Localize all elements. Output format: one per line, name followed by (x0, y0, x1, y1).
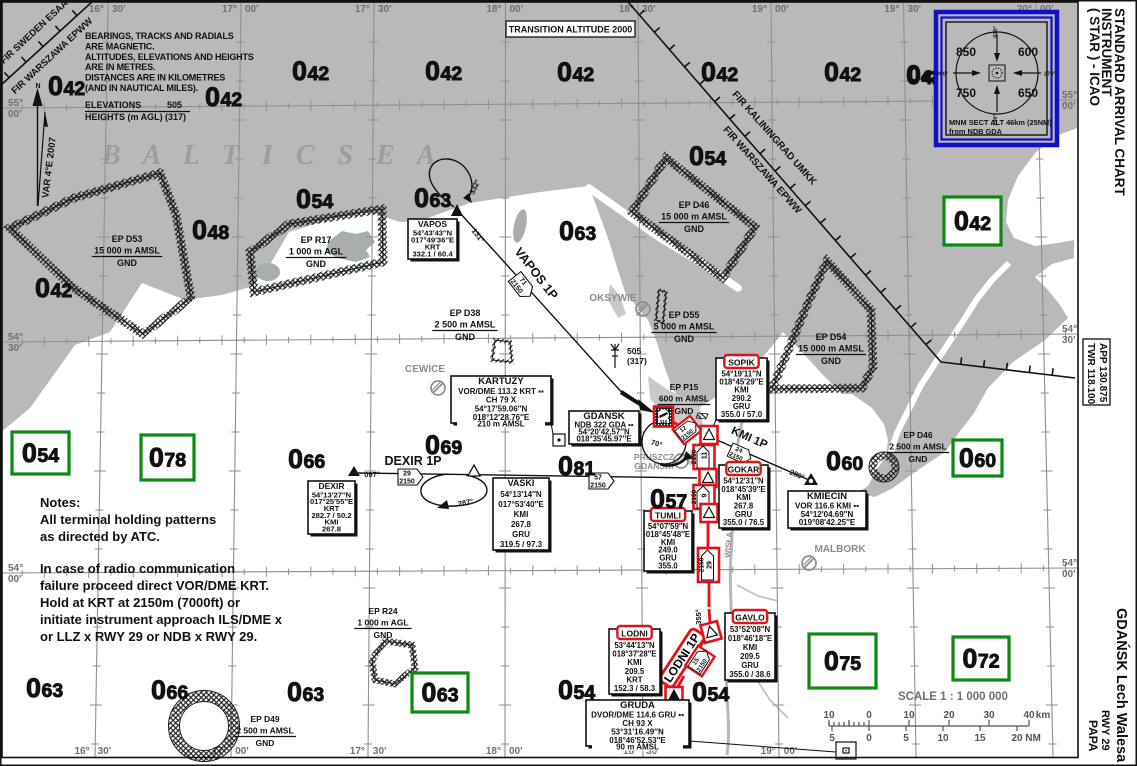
svg-text:20: 20 (943, 710, 955, 721)
svg-text:KMI: KMI (743, 643, 757, 652)
svg-text:APP 130.875: APP 130.875 (1097, 343, 1108, 403)
svg-text:018°37′28″E: 018°37′28″E (612, 649, 656, 658)
svg-text:5: 5 (903, 733, 909, 744)
svg-text:54°17′59.06″N: 54°17′59.06″N (475, 404, 528, 413)
svg-text:OKSYWIE: OKSYWIE (589, 293, 637, 304)
svg-text:11: 11 (702, 452, 709, 460)
svg-text:10: 10 (903, 710, 915, 721)
svg-text:019°08′42.25″E: 019°08′42.25″E (799, 518, 856, 527)
svg-text:2 500 m AMSL: 2 500 m AMSL (435, 320, 496, 330)
svg-text:355.0 / 57.0: 355.0 / 57.0 (721, 410, 763, 419)
svg-text:2150: 2150 (691, 449, 698, 464)
svg-text:EP D46: EP D46 (679, 200, 710, 210)
svg-text:054: 054 (558, 675, 595, 705)
svg-text:2150: 2150 (399, 479, 415, 486)
svg-text:ELEVATIONS: ELEVATIONS (85, 100, 141, 110)
svg-text:In case of radio communication: In case of radio communication (40, 561, 235, 576)
svg-text:17°: 17° (355, 4, 370, 15)
svg-text:16°: 16° (74, 746, 89, 757)
svg-text:9: 9 (702, 493, 709, 497)
svg-text:initiate instrument approach I: initiate instrument approach ILS/DME x (40, 612, 283, 627)
svg-text:HEIGHTS (m AGL): HEIGHTS (m AGL) (85, 112, 163, 122)
svg-text:EP D54: EP D54 (816, 332, 847, 342)
svg-text:17°: 17° (350, 746, 365, 757)
svg-text:18°: 18° (486, 4, 501, 15)
svg-text:SOPIK: SOPIK (728, 358, 755, 368)
svg-text:18°: 18° (486, 746, 501, 757)
svg-text:EP R17: EP R17 (301, 235, 332, 245)
svg-text:2150: 2150 (699, 557, 706, 572)
svg-text:29: 29 (707, 561, 714, 569)
svg-text:LODNI: LODNI (621, 629, 647, 639)
svg-text:090°: 090° (937, 72, 948, 78)
svg-text:CH 79 X: CH 79 X (486, 396, 517, 405)
svg-text:30: 30 (983, 710, 995, 721)
svg-text:km: km (1036, 710, 1051, 721)
svg-text:15 000 m AMSL: 15 000 m AMSL (661, 212, 727, 222)
svg-text:GND: GND (455, 332, 476, 342)
svg-text:KMIECIN: KMIECIN (807, 491, 847, 502)
svg-text:30': 30' (98, 746, 112, 757)
svg-text:90 m AMSL: 90 m AMSL (616, 743, 659, 752)
svg-text:060: 060 (826, 446, 863, 476)
svg-text:2 500 m AMSL: 2 500 m AMSL (889, 442, 946, 452)
svg-text:2150: 2150 (691, 489, 698, 504)
svg-text:55°: 55° (8, 98, 23, 109)
svg-text:010°: 010° (993, 26, 999, 37)
svg-text:ALTITUDES, ELEVATIONS AND HEIG: ALTITUDES, ELEVATIONS AND HEIGHTS (85, 52, 254, 62)
svg-text:332.1 / 60.4: 332.1 / 60.4 (412, 249, 453, 258)
svg-text:GND: GND (909, 454, 928, 464)
svg-text:GRUDA: GRUDA (620, 700, 655, 711)
svg-text:5 000 m AMSL: 5 000 m AMSL (654, 322, 715, 332)
svg-text:GND: GND (306, 259, 327, 269)
svg-text:MALBORK: MALBORK (814, 544, 866, 555)
svg-text:Hold at KRT at 2150m (7000ft): Hold at KRT at 2150m (7000ft) or (40, 595, 240, 610)
svg-text:KMI: KMI (627, 658, 641, 667)
svg-text:GND: GND (674, 334, 695, 344)
svg-text:063: 063 (559, 216, 596, 246)
svg-text:failure proceed direct VOR/DME: failure proceed direct VOR/DME KRT. (40, 578, 269, 593)
svg-text:00': 00' (775, 4, 789, 15)
svg-text:267.8: 267.8 (322, 524, 341, 533)
svg-text:00': 00' (8, 109, 22, 120)
svg-text:All terminal holding patterns: All terminal holding patterns (40, 512, 216, 527)
svg-text:066: 066 (288, 444, 325, 474)
svg-text:( STAR ) - ICAO: ( STAR ) - ICAO (1087, 8, 1102, 106)
svg-text:355.0 / 38.6: 355.0 / 38.6 (729, 670, 771, 679)
svg-text:GND: GND (117, 258, 138, 268)
svg-text:(AND IN NAUTICAL MILES).: (AND IN NAUTICAL MILES). (85, 83, 198, 93)
svg-text:270°: 270° (1044, 72, 1055, 78)
svg-text:30': 30' (8, 343, 22, 354)
svg-text:(317): (317) (627, 356, 647, 366)
svg-text:097°: 097° (364, 470, 380, 479)
svg-text:209.5: 209.5 (740, 652, 760, 661)
svg-text:54°: 54° (1062, 324, 1077, 335)
svg-text:018°35′45.97″E: 018°35′45.97″E (576, 434, 631, 443)
svg-text:287°: 287° (457, 497, 474, 509)
svg-text:210 m AMSL: 210 m AMSL (477, 420, 524, 429)
svg-text:40: 40 (1023, 710, 1035, 721)
svg-text:GND: GND (256, 738, 275, 748)
svg-text:54°: 54° (8, 332, 23, 343)
svg-text:19°: 19° (752, 4, 767, 15)
svg-text:VASKI: VASKI (508, 478, 535, 488)
svg-text:KRT: KRT (626, 675, 642, 684)
svg-text:29: 29 (403, 471, 411, 478)
svg-text:54°: 54° (1062, 558, 1077, 569)
svg-text:069: 069 (425, 430, 462, 460)
svg-text:5: 5 (829, 733, 835, 744)
svg-text:EP R24: EP R24 (368, 606, 397, 616)
svg-text:N: N (35, 83, 40, 90)
svg-text:081: 081 (558, 451, 595, 481)
svg-text:054: 054 (692, 677, 729, 707)
svg-text:00': 00' (509, 746, 523, 757)
svg-text:017°53′40″E: 017°53′40″E (498, 500, 544, 509)
svg-text:20: 20 (1011, 733, 1023, 744)
svg-text:505: 505 (627, 346, 641, 356)
svg-text:EP D55: EP D55 (669, 310, 700, 320)
svg-text:16°: 16° (89, 4, 104, 15)
svg-text:or LLZ x RWY 29 or NDB x RWY 2: or LLZ x RWY 29 or NDB x RWY 29. (40, 629, 257, 644)
svg-text:EP D38: EP D38 (450, 308, 481, 318)
svg-text:17°: 17° (222, 4, 237, 15)
svg-text:DISTANCES ARE IN KILOMETRES: DISTANCES ARE IN KILOMETRES (85, 73, 225, 83)
svg-text:30': 30' (373, 746, 387, 757)
svg-text:GOKAR: GOKAR (728, 465, 760, 475)
svg-text:15: 15 (974, 733, 986, 744)
svg-text:TRANSITION ALTITUDE 2000: TRANSITION ALTITUDE 2000 (509, 25, 633, 35)
svg-text:00': 00' (784, 746, 798, 757)
svg-text:1 000 m AGL: 1 000 m AGL (289, 247, 344, 257)
svg-text:152.3 / 58.3: 152.3 / 58.3 (614, 684, 656, 693)
svg-text:600 m AMSL: 600 m AMSL (659, 394, 709, 404)
svg-text:018°46′18″E: 018°46′18″E (728, 634, 772, 643)
svg-text:30': 30' (112, 4, 126, 15)
svg-text:57: 57 (594, 475, 602, 482)
svg-text:EP D53: EP D53 (112, 234, 143, 244)
svg-text:GRU: GRU (512, 530, 530, 539)
svg-text:from NDB GDA: from NDB GDA (949, 127, 1003, 136)
svg-text:SCALE 1 : 1 000 000: SCALE 1 : 1 000 000 (898, 691, 1008, 703)
svg-text:650: 650 (1018, 86, 1038, 100)
svg-text:EP D49: EP D49 (250, 714, 279, 724)
svg-text:1 000 m AGL: 1 000 m AGL (357, 618, 408, 628)
svg-text:54°13′14″N: 54°13′14″N (500, 490, 542, 499)
svg-text:BEARINGS, TRACKS AND RADIALS: BEARINGS, TRACKS AND RADIALS (85, 31, 234, 41)
svg-text:00': 00' (1062, 101, 1076, 112)
svg-text:267.8: 267.8 (511, 520, 532, 529)
svg-text:GND: GND (374, 630, 393, 640)
svg-text:110: 110 (660, 419, 668, 424)
svg-text:as directed by ATC.: as directed by ATC. (40, 529, 160, 544)
svg-text:70°: 70° (650, 438, 663, 450)
svg-text:CEWICE: CEWICE (405, 364, 445, 375)
svg-text:53°52′08″N: 53°52′08″N (730, 625, 771, 634)
svg-text:ARE MAGNETIC.: ARE MAGNETIC. (85, 41, 154, 51)
svg-text:355.0 / 76.5: 355.0 / 76.5 (723, 518, 765, 527)
svg-text:505: 505 (167, 100, 182, 110)
svg-text:2150: 2150 (590, 483, 606, 490)
svg-text:00': 00' (1062, 569, 1076, 580)
svg-text:Notes:: Notes: (40, 495, 80, 510)
svg-text:VOR/DME 113.2 KRT ▪▪: VOR/DME 113.2 KRT ▪▪ (458, 387, 544, 396)
svg-text:2 500 m AMSL: 2 500 m AMSL (236, 726, 293, 736)
svg-text:30': 30' (1062, 335, 1076, 346)
svg-text:280°: 280° (788, 467, 806, 482)
svg-text:30': 30' (908, 4, 922, 15)
svg-text:GRU: GRU (741, 661, 759, 670)
svg-text:15 000 m AMSL: 15 000 m AMSL (94, 246, 160, 256)
svg-text:0: 0 (866, 710, 872, 721)
svg-text:066: 066 (151, 675, 188, 705)
svg-text:00': 00' (235, 746, 249, 757)
svg-text:00': 00' (245, 4, 259, 15)
svg-text:MNM SECT ALT 46km (25NM): MNM SECT ALT 46km (25NM) (949, 118, 1052, 127)
svg-text:ARE IN METRES.: ARE IN METRES. (85, 62, 155, 72)
svg-text:10: 10 (823, 710, 835, 721)
svg-text:KMI: KMI (514, 510, 529, 519)
svg-text:GAVLO: GAVLO (735, 613, 765, 623)
svg-text:750: 750 (956, 86, 976, 100)
svg-text:GND: GND (675, 406, 694, 416)
svg-text:600: 600 (1018, 45, 1038, 59)
svg-text:TWR 118.100: TWR 118.100 (1085, 343, 1096, 405)
svg-text:B A L T I C S E A: B A L T I C S E A (101, 140, 443, 171)
svg-text:KARTUZY: KARTUZY (478, 376, 524, 387)
svg-text:19°: 19° (884, 4, 899, 15)
svg-text:355.0: 355.0 (658, 561, 678, 570)
svg-text:55°: 55° (1062, 90, 1077, 101)
svg-text:063: 063 (26, 673, 63, 703)
svg-text:54°: 54° (8, 563, 23, 574)
svg-text:15 000 m AMSL: 15 000 m AMSL (798, 344, 864, 354)
svg-text:319.5 / 97.3: 319.5 / 97.3 (500, 540, 543, 549)
svg-text:131°: 131° (470, 227, 487, 245)
svg-text:00': 00' (510, 4, 524, 15)
svg-text:GDAŃSK Lech Walesa: GDAŃSK Lech Walesa (1113, 608, 1130, 763)
svg-text:EP P15: EP P15 (670, 382, 699, 392)
svg-text:EP D46: EP D46 (903, 430, 932, 440)
svg-text:355°: 355° (694, 609, 703, 625)
svg-text:10: 10 (937, 733, 949, 744)
svg-text:850: 850 (956, 45, 976, 59)
svg-text:(317): (317) (165, 112, 186, 122)
svg-text:00': 00' (8, 574, 22, 585)
svg-text:NM: NM (1025, 733, 1041, 744)
svg-text:53°44′13″N: 53°44′13″N (614, 641, 655, 650)
svg-text:GND: GND (821, 356, 842, 366)
svg-text:30': 30' (378, 4, 392, 15)
svg-text:30': 30' (642, 4, 656, 15)
svg-text:063: 063 (287, 677, 324, 707)
svg-text:057: 057 (650, 484, 687, 514)
svg-text:GND: GND (684, 224, 705, 234)
svg-text:PAPA: PAPA (1086, 720, 1100, 752)
svg-text:209.5: 209.5 (625, 667, 645, 676)
svg-text:0: 0 (866, 733, 872, 744)
